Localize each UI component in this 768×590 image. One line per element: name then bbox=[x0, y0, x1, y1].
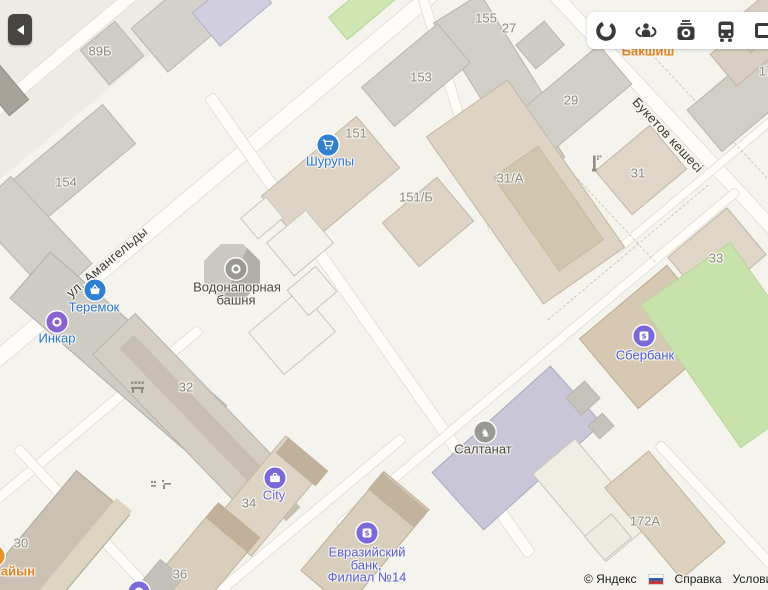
poi-label[interactable]: Филиал №14 bbox=[328, 570, 407, 585]
rocking-horse-icon[interactable]: ♞ bbox=[475, 422, 496, 443]
building-number: 151 bbox=[345, 126, 367, 141]
traffic-ring-icon bbox=[594, 19, 618, 43]
panoramas-person-icon bbox=[634, 19, 658, 43]
poi-label[interactable]: Сбербанк bbox=[616, 348, 674, 363]
screen-icon bbox=[754, 19, 768, 43]
russia-flag-icon bbox=[648, 574, 664, 585]
screen-button[interactable] bbox=[749, 15, 768, 46]
map-attribution: © Яндекс Справка Условия испо bbox=[584, 572, 768, 586]
svg-text:$: $ bbox=[641, 332, 646, 341]
building-number: 30 bbox=[14, 536, 28, 551]
copyright-link[interactable]: © Яндекс bbox=[584, 572, 637, 586]
building-number: 155 bbox=[475, 11, 497, 26]
playground-icon bbox=[150, 478, 172, 496]
svg-text:♞: ♞ bbox=[480, 427, 489, 439]
building-number: 31 bbox=[631, 166, 645, 181]
transit-stop-icon bbox=[591, 154, 603, 179]
building-number: 36 bbox=[173, 567, 187, 582]
bank-dollar-icon[interactable]: $ bbox=[634, 326, 655, 347]
svg-text:$: $ bbox=[364, 529, 369, 538]
map-canvas[interactable]: 89Б 154 153 155 27 29 151 151/Б 31/А 31 … bbox=[0, 0, 768, 590]
transit-bus-icon bbox=[714, 19, 738, 43]
poi-label[interactable]: Салтанат bbox=[454, 442, 511, 457]
panoramas-button[interactable] bbox=[629, 15, 663, 46]
bench-icon bbox=[129, 381, 147, 400]
building-number: 17 bbox=[759, 64, 768, 79]
poi-label[interactable]: башня bbox=[216, 293, 255, 308]
transit-button[interactable] bbox=[709, 15, 743, 46]
building-number: 151/Б bbox=[399, 190, 433, 205]
building-number: 153 bbox=[410, 70, 432, 85]
ring-dot-icon[interactable] bbox=[47, 312, 68, 333]
building-number: 172А bbox=[630, 514, 660, 529]
terms-link[interactable]: Условия испо bbox=[733, 572, 768, 586]
poi-label[interactable]: Теремок bbox=[69, 300, 120, 315]
bank-dollar-icon[interactable]: $ bbox=[357, 523, 378, 544]
help-link[interactable]: Справка bbox=[675, 572, 722, 586]
poi-label[interactable]: Шурупы bbox=[306, 154, 354, 169]
shopping-cart-icon[interactable] bbox=[318, 135, 339, 156]
briefcase-icon[interactable] bbox=[265, 468, 286, 489]
building-number: 34 bbox=[242, 496, 256, 511]
poi-label[interactable]: айын bbox=[1, 564, 35, 579]
back-button[interactable] bbox=[8, 14, 32, 45]
shopping-basket-icon[interactable] bbox=[85, 280, 106, 301]
building-number: 27 bbox=[502, 21, 516, 36]
building-number: 29 bbox=[564, 93, 578, 108]
building-number: 32 bbox=[179, 380, 193, 395]
building-number: 33 bbox=[709, 251, 723, 266]
map-toolbar bbox=[587, 12, 768, 49]
poi-label[interactable]: Инкар bbox=[39, 331, 76, 346]
photos-button[interactable] bbox=[669, 15, 703, 46]
building-number: 31/А bbox=[497, 171, 524, 186]
photos-camera-icon bbox=[674, 19, 698, 43]
traffic-ring-button[interactable] bbox=[589, 15, 623, 46]
poi-label[interactable]: City bbox=[263, 488, 285, 503]
building-number: 89Б bbox=[89, 44, 112, 59]
chevron-left-icon bbox=[17, 25, 24, 35]
ring-dot-icon[interactable] bbox=[226, 259, 247, 280]
building-number: 154 bbox=[55, 175, 77, 190]
